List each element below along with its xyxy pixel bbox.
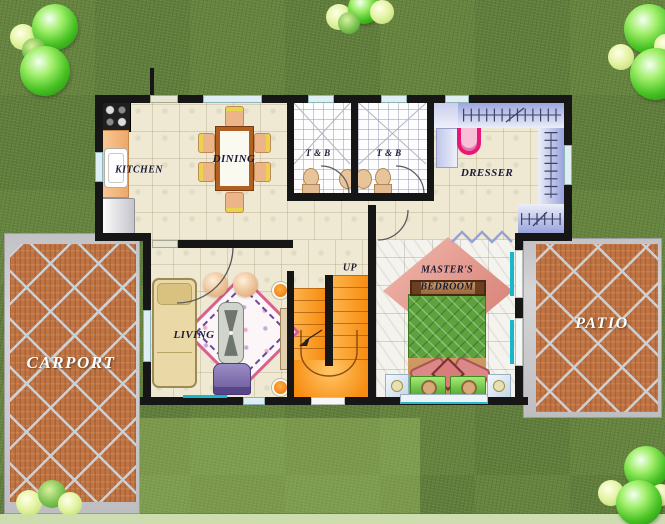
wall-bath-bottom bbox=[287, 193, 434, 201]
wall-entry bbox=[176, 240, 293, 248]
wall-stair-right bbox=[368, 205, 376, 398]
window bbox=[381, 95, 407, 103]
tb1-label: T & B bbox=[305, 148, 330, 158]
window bbox=[150, 95, 178, 103]
closet-right bbox=[538, 128, 564, 204]
window bbox=[143, 310, 151, 362]
shrub-icon bbox=[370, 0, 394, 24]
window bbox=[564, 145, 572, 185]
ottoman bbox=[203, 272, 228, 297]
stairs-up-label: UP bbox=[343, 263, 357, 274]
tree-top-middle bbox=[318, 0, 394, 36]
dining-chair bbox=[198, 133, 215, 153]
dining-chair bbox=[254, 162, 271, 182]
lawn-light-patch bbox=[140, 418, 420, 516]
wall-stub-top bbox=[150, 68, 154, 96]
tree-icon bbox=[630, 48, 665, 100]
wall-stair-left bbox=[287, 271, 294, 398]
wall-bath-mid bbox=[351, 102, 358, 201]
stair-flight-left bbox=[293, 288, 325, 360]
living-label: LIVING bbox=[174, 329, 215, 341]
kitchen-label: KITCHEN bbox=[115, 165, 163, 176]
ottoman bbox=[233, 272, 258, 297]
wall-bath-right bbox=[427, 102, 434, 201]
armchair bbox=[213, 363, 251, 395]
coffee-table bbox=[218, 302, 244, 364]
dining-chair bbox=[198, 162, 215, 182]
dining-chair bbox=[254, 133, 271, 153]
window bbox=[308, 95, 334, 103]
dresser-desk bbox=[436, 128, 458, 168]
dining-chair bbox=[225, 192, 244, 213]
shrubs-bottom-left bbox=[14, 474, 84, 518]
nightstand bbox=[487, 374, 511, 398]
vanity-chair bbox=[457, 128, 481, 155]
dresser-label: DRESSER bbox=[461, 167, 513, 179]
window bbox=[515, 318, 523, 366]
closet-top bbox=[458, 102, 564, 128]
closet-bottom bbox=[518, 204, 564, 233]
door-opening bbox=[311, 397, 345, 405]
tb2-label: T & B bbox=[376, 148, 401, 158]
bedroom-sliding-door bbox=[400, 394, 488, 404]
shrub-icon bbox=[338, 12, 360, 34]
stove bbox=[101, 100, 131, 132]
sliding-window-marker bbox=[183, 395, 227, 398]
window bbox=[203, 95, 262, 103]
shrub-icon bbox=[58, 492, 82, 516]
tree-icon bbox=[616, 480, 662, 524]
window bbox=[445, 95, 469, 103]
sliding-window-marker bbox=[510, 252, 514, 296]
stair-flight-right bbox=[333, 275, 368, 360]
master-bedroom-label-line1: MASTER'S bbox=[421, 265, 473, 276]
window bbox=[515, 250, 523, 298]
bed bbox=[408, 294, 486, 362]
window bbox=[243, 397, 265, 405]
tree-top-left bbox=[8, 4, 92, 96]
wall-right-step bbox=[515, 233, 572, 241]
carport-brick-paving bbox=[10, 244, 136, 502]
wall-bath-left bbox=[287, 102, 294, 201]
dining-chair bbox=[225, 106, 244, 127]
closet-corner bbox=[434, 102, 458, 128]
lawn-edge-strip bbox=[0, 514, 665, 524]
dining-label: DINING bbox=[213, 153, 256, 165]
tree-bottom-right bbox=[596, 444, 665, 522]
entry-door-opening bbox=[152, 240, 178, 248]
carport-label: CARPORT bbox=[27, 353, 116, 373]
wall-stair-center bbox=[325, 275, 333, 366]
floor-plan-scene: KITCHEN DINING T & B T & B DRESSER MASTE… bbox=[0, 0, 665, 524]
window bbox=[95, 152, 103, 182]
tree-top-right bbox=[602, 4, 665, 100]
sliding-window-marker bbox=[510, 320, 514, 364]
carport-area bbox=[4, 233, 140, 514]
tree-icon bbox=[20, 46, 70, 96]
master-bedroom-label-line2: BEDROOM bbox=[420, 282, 473, 293]
refrigerator bbox=[100, 198, 135, 234]
patio-label: PATIO bbox=[575, 315, 628, 333]
